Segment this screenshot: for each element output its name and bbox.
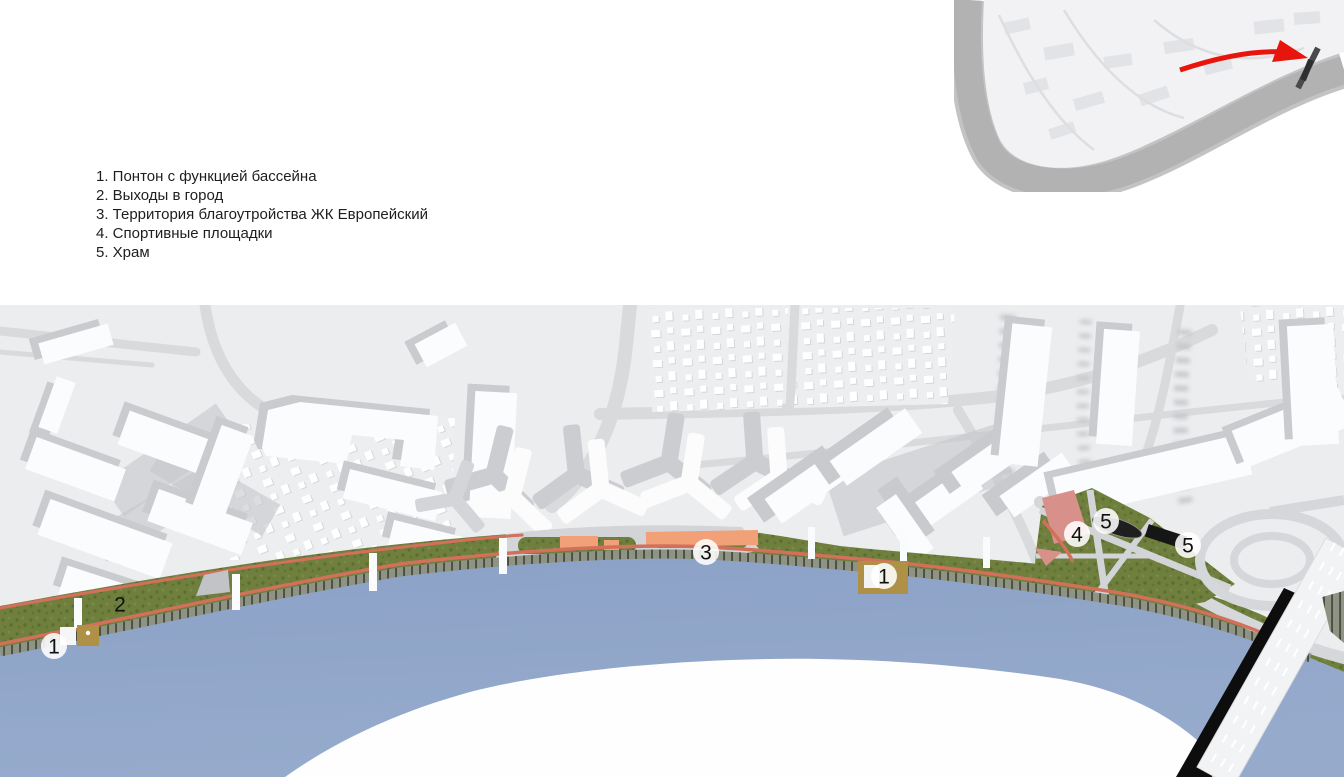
legend: 1. Понтон с функцией бассейна 2. Выходы … xyxy=(96,167,428,262)
marker-label: 4 xyxy=(1071,524,1083,547)
legend-item: 4. Спортивные площадки xyxy=(96,224,428,243)
inset-map xyxy=(954,0,1344,192)
legend-item: 3. Территория благоутройства ЖК Европейс… xyxy=(96,205,428,224)
marker-label: 5 xyxy=(1100,511,1112,534)
marker-label: 3 xyxy=(700,542,712,565)
marker-label: 1 xyxy=(878,566,890,589)
marker-label: 1 xyxy=(48,636,60,659)
masterplan-page: { "legend": { "items": [ "1. Понтон с фу… xyxy=(0,0,1344,777)
legend-item: 2. Выходы в город xyxy=(96,186,428,205)
marker-label: 2 xyxy=(114,594,126,617)
legend-item: 1. Понтон с функцией бассейна xyxy=(96,167,428,186)
marker-label: 5 xyxy=(1182,535,1194,558)
site-plan: 1231455 xyxy=(0,305,1344,777)
legend-item: 5. Храм xyxy=(96,243,428,262)
